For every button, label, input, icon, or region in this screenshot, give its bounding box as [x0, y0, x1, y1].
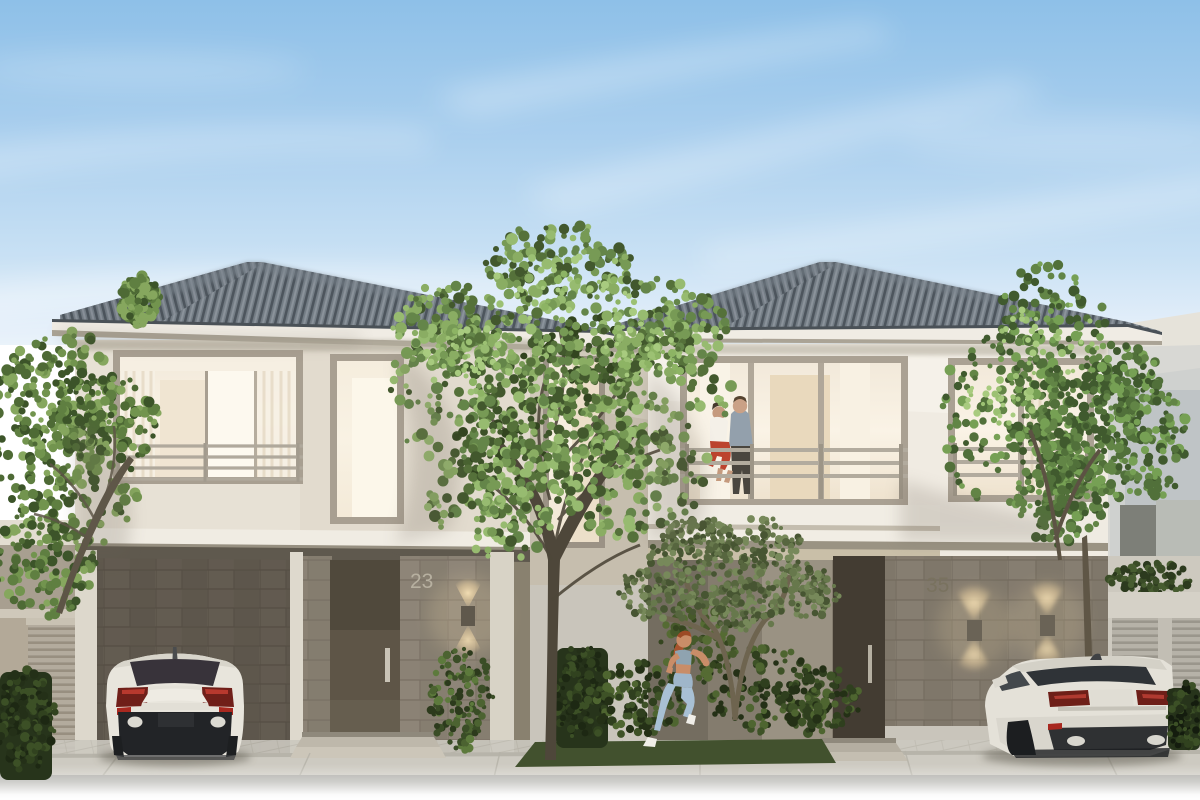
svg-text:35: 35 — [926, 574, 949, 597]
svg-text:23: 23 — [410, 570, 433, 593]
